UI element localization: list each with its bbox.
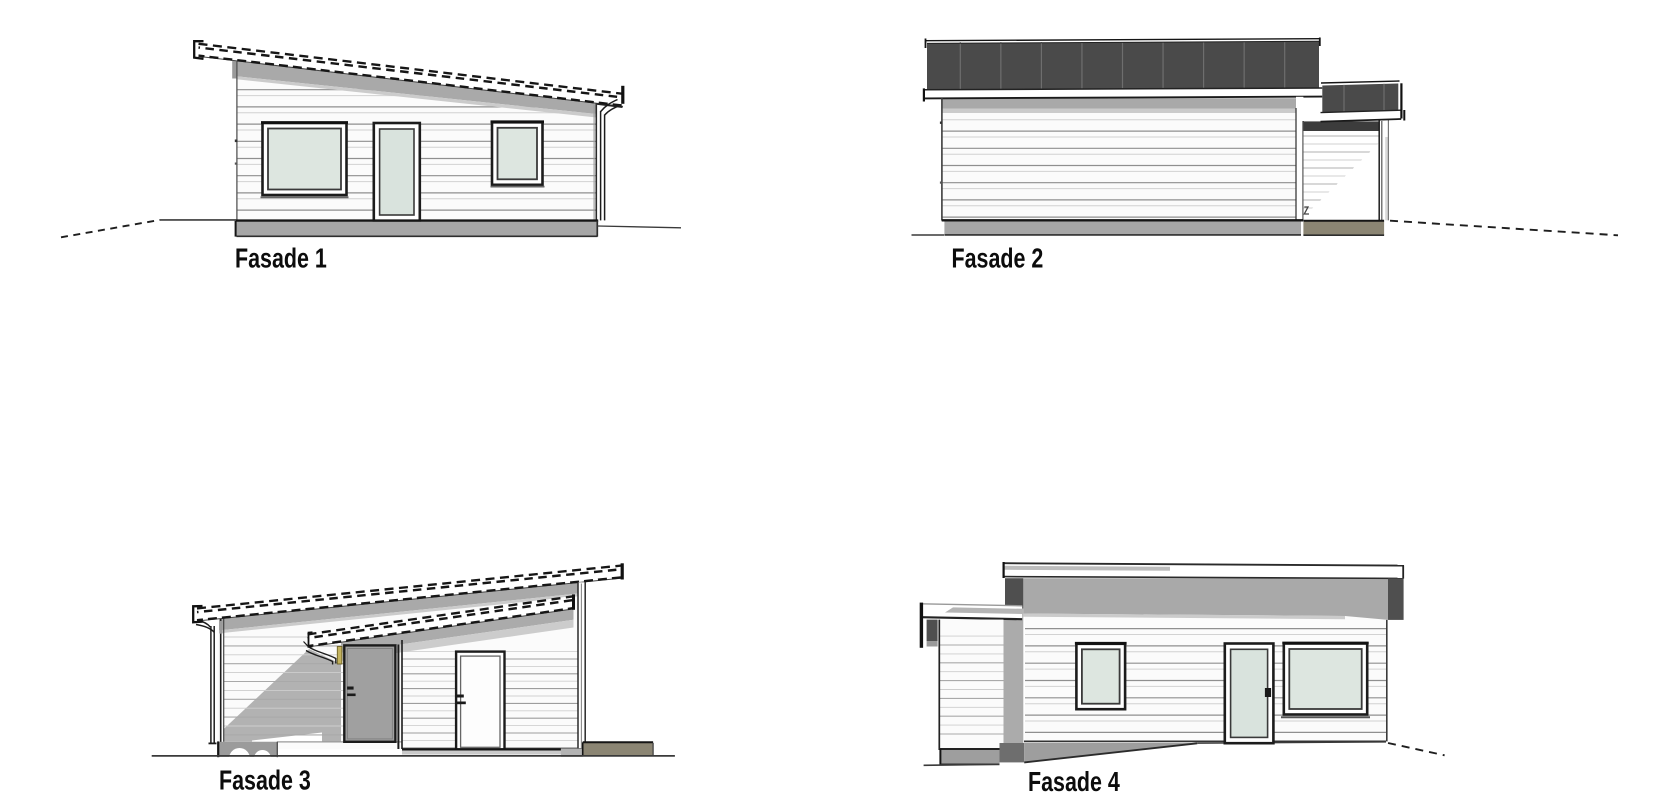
svg-text:Fasade 4: Fasade 4 [1028, 768, 1120, 798]
svg-text:Fasade 1: Fasade 1 [235, 244, 327, 274]
svg-text:Fasade 2: Fasade 2 [952, 244, 1044, 274]
svg-text:Fasade 3: Fasade 3 [219, 766, 311, 796]
